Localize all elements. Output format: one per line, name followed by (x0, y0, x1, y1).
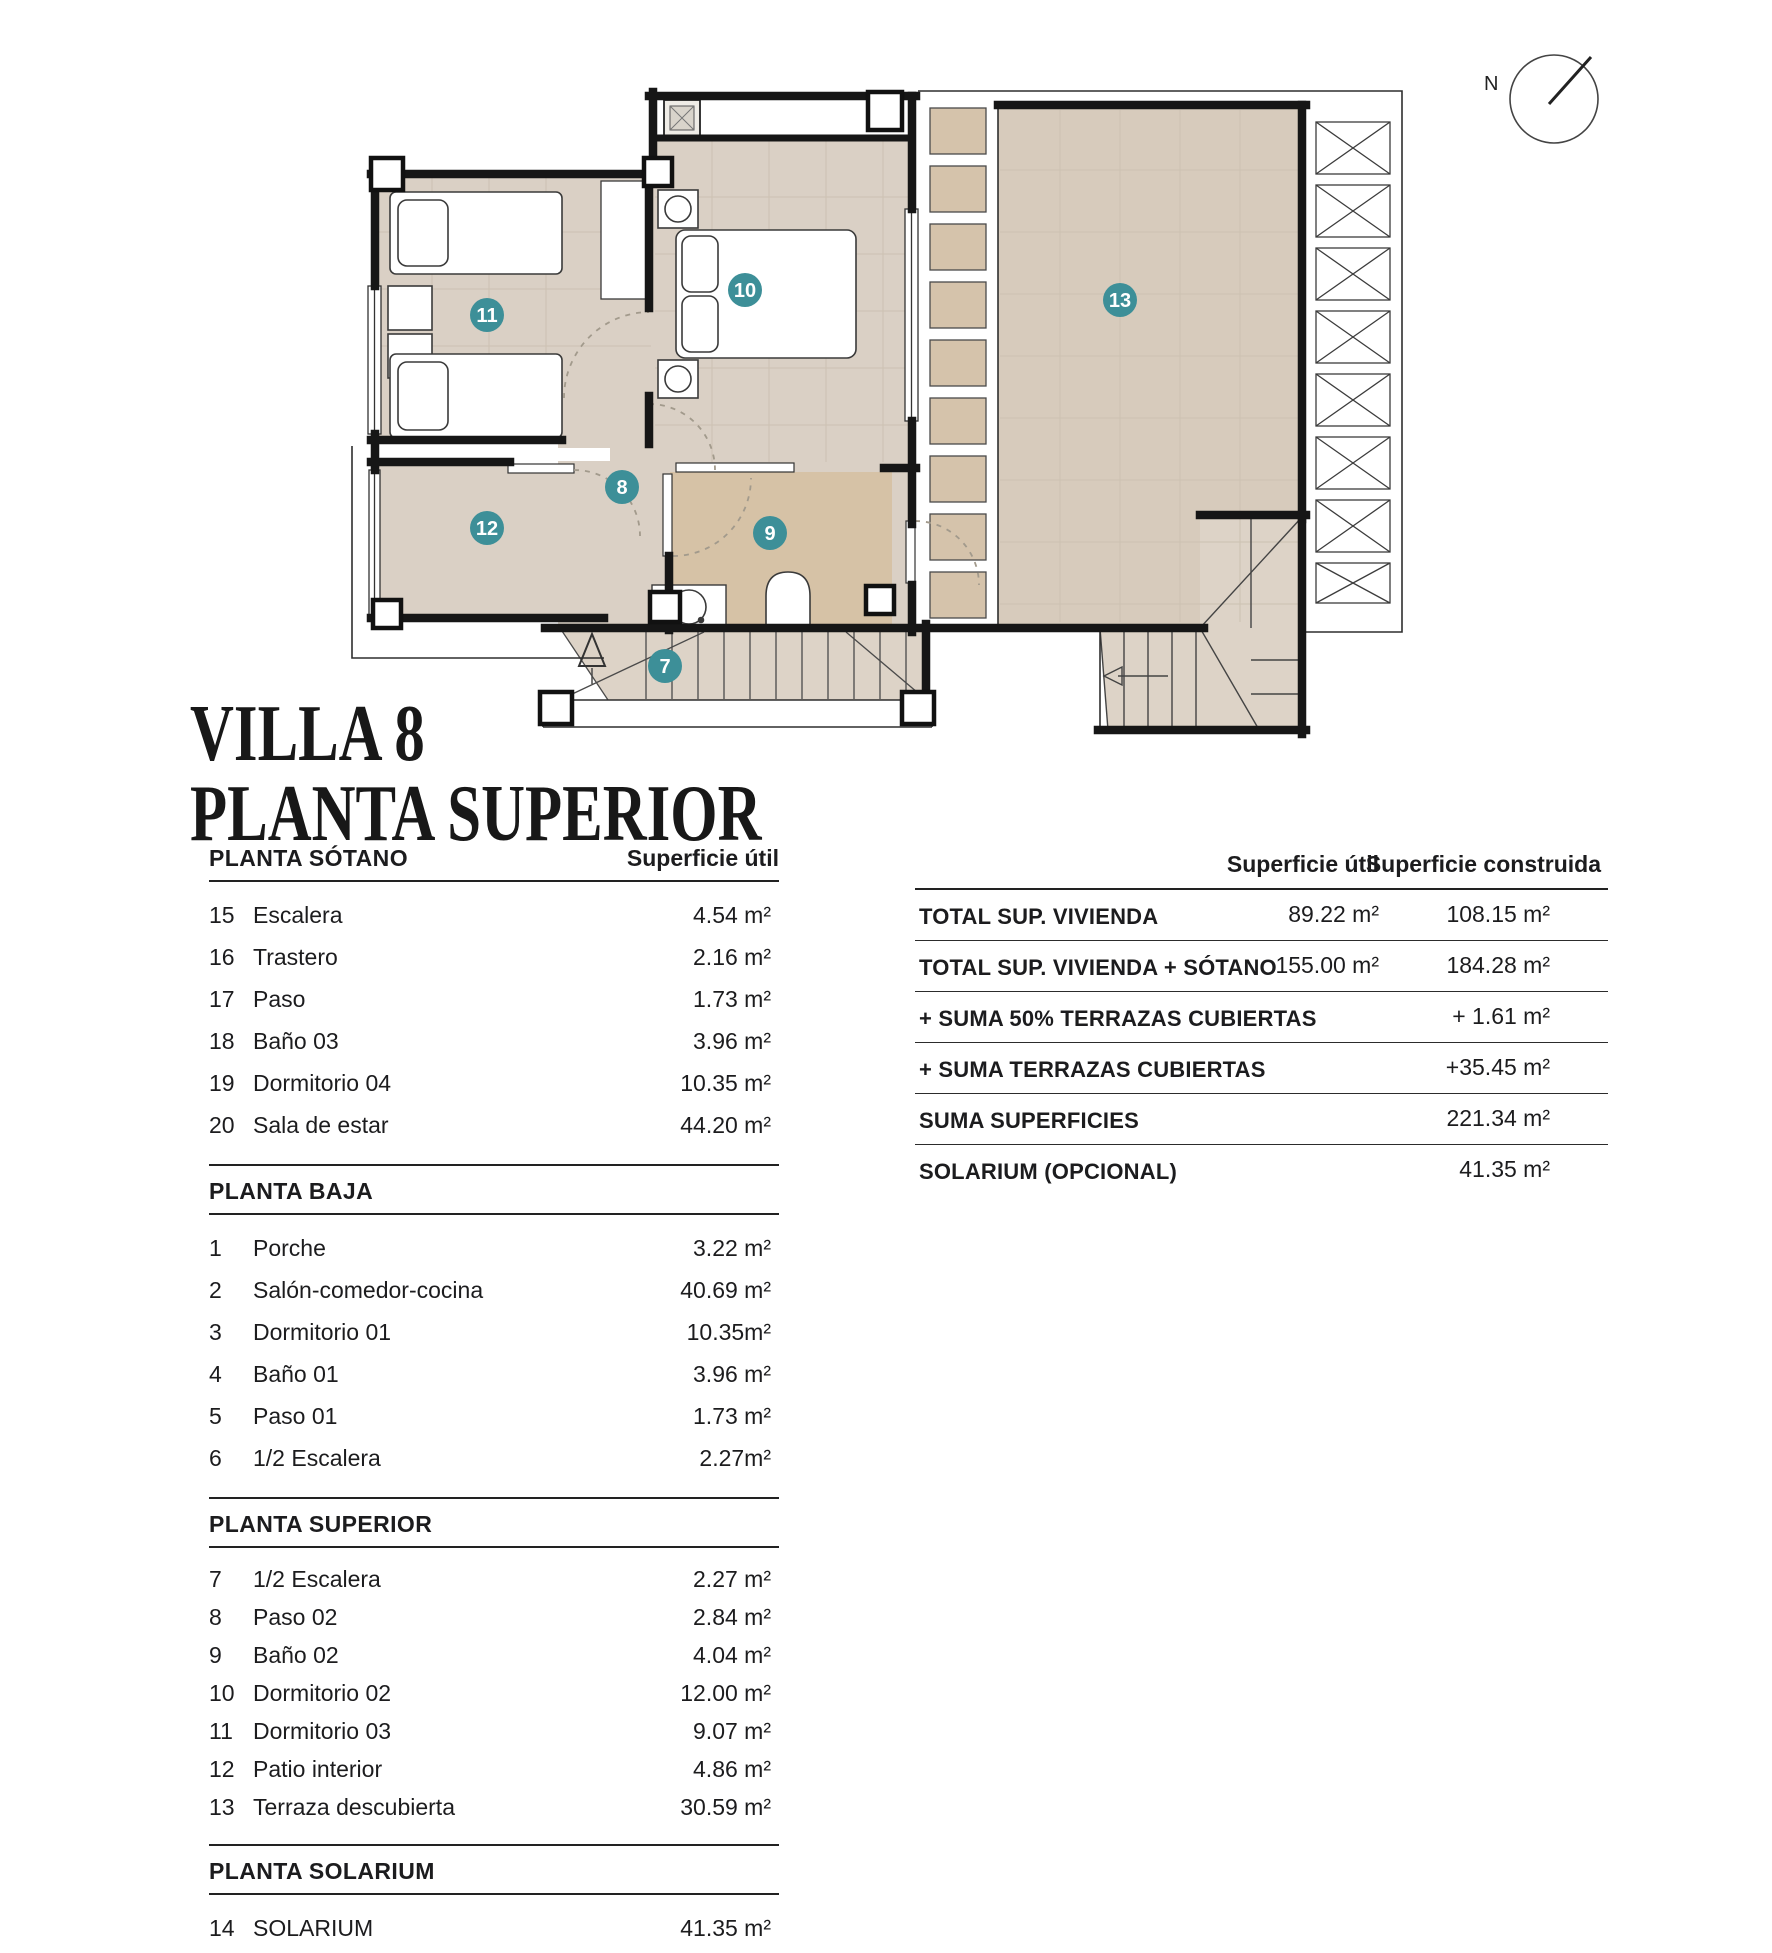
schedule-rows: 15Escalera4.54 m²16Trastero2.16 m²17Paso… (209, 882, 779, 1146)
room-number: 10 (209, 1680, 253, 1707)
room-area: 30.59 m² (680, 1794, 779, 1821)
door-leaf (508, 464, 574, 473)
room-number: 1 (209, 1235, 253, 1262)
summary-row: + SUMA TERRAZAS CUBIERTAS+35.45 m² (915, 1043, 1608, 1094)
room-name: Trastero (253, 944, 693, 971)
table-row: 16Trastero2.16 m² (209, 936, 779, 978)
summary-label: + SUMA TERRAZAS CUBIERTAS (919, 1057, 1266, 1083)
room-number: 17 (209, 986, 253, 1013)
pillow (682, 236, 718, 292)
room-area: 3.96 m² (693, 1028, 779, 1055)
room-area: 2.16 m² (693, 944, 779, 971)
summary-construida-value: 184.28 m² (1446, 952, 1550, 979)
room-area: 9.07 m² (693, 1718, 779, 1745)
table-row: 3Dormitorio 0110.35m² (209, 1311, 779, 1353)
section-title: PLANTA SÓTANO (209, 845, 408, 872)
room-area: 12.00 m² (680, 1680, 779, 1707)
pillar (868, 92, 902, 130)
lamp-icon (665, 196, 691, 222)
summary-label: TOTAL SUP. VIVIENDA + SÓTANO (919, 955, 1277, 981)
table-row: 13Terraza descubierta30.59 m² (209, 1788, 779, 1826)
room-number: 4 (209, 1361, 253, 1388)
schedule-section: PLANTA SÓTANOSuperficie útil15Escalera4.… (209, 845, 779, 1150)
wardrobe (601, 181, 649, 299)
pillar (902, 692, 934, 724)
table-row: 18Baño 033.96 m² (209, 1020, 779, 1062)
room-number: 18 (209, 1028, 253, 1055)
door-leaf (663, 474, 672, 556)
room-area: 4.04 m² (693, 1642, 779, 1669)
room-number: 6 (209, 1445, 253, 1472)
column-header-superficie-util: Superficie útil (1227, 851, 1379, 878)
room-marker-number: 11 (476, 305, 497, 327)
table-row: 9Baño 024.04 m² (209, 1636, 779, 1674)
room-name: Baño 03 (253, 1028, 693, 1055)
room-area: 41.35 m² (680, 1915, 779, 1942)
schedule-rows: 71/2 Escalera2.27 m²8Paso 022.84 m²9Baño… (209, 1548, 779, 1826)
schedule-section-header: PLANTA BAJA (209, 1178, 779, 1215)
section-title: PLANTA SUPERIOR (209, 1511, 432, 1538)
chimney (664, 100, 700, 136)
toilet-icon (766, 572, 810, 628)
room-name: Porche (253, 1235, 693, 1262)
room-name: Dormitorio 04 (253, 1070, 680, 1097)
pillar (650, 592, 680, 622)
room-name: 1/2 Escalera (253, 1566, 693, 1593)
room-number: 7 (209, 1566, 253, 1593)
room-area: 1.73 m² (693, 1403, 779, 1430)
page-title: VILLA 8 PLANTA SUPERIOR (190, 694, 761, 854)
room-number: 16 (209, 944, 253, 971)
room-area: 3.22 m² (693, 1235, 779, 1262)
exterior-stairs-fan-floor (1100, 628, 1200, 730)
compass-icon: N (1484, 55, 1598, 143)
room-marker-number: 13 (1109, 290, 1131, 312)
schedule-rows: 14SOLARIUM41.35 m² (209, 1895, 779, 1949)
room-area: 1.73 m² (693, 986, 779, 1013)
table-row: 71/2 Escalera2.27 m² (209, 1560, 779, 1598)
summary-header: Superficie útil Superficie construida (915, 845, 1608, 890)
summary-util-value: 155.00 m² (1275, 952, 1379, 979)
room-area: 40.69 m² (680, 1277, 779, 1304)
table-row: 20Sala de estar44.20 m² (209, 1104, 779, 1146)
title-line2: PLANTA SUPERIOR (190, 774, 761, 854)
room-name: Baño 02 (253, 1642, 693, 1669)
table-row: 11Dormitorio 039.07 m² (209, 1712, 779, 1750)
stairs-floor (560, 628, 930, 700)
summary-label: SUMA SUPERFICIES (919, 1108, 1139, 1134)
room-marker-number: 9 (764, 523, 775, 545)
room-number: 5 (209, 1403, 253, 1430)
room-number: 20 (209, 1112, 253, 1139)
floor-plan-svg: N 10111389127 (0, 0, 1772, 790)
room-area: 10.35 m² (680, 1070, 779, 1097)
pillar (371, 158, 403, 190)
room-schedule-table: PLANTA SÓTANOSuperficie útil15Escalera4.… (209, 845, 779, 1953)
room-name: Dormitorio 01 (253, 1319, 687, 1346)
summary-construida-value: 221.34 m² (1446, 1105, 1550, 1132)
schedule-section: PLANTA SUPERIOR71/2 Escalera2.27 m²8Paso… (209, 1497, 779, 1830)
room-area: 2.27m² (699, 1445, 779, 1472)
room-number: 2 (209, 1277, 253, 1304)
table-row: 1Porche3.22 m² (209, 1227, 779, 1269)
room-name: Baño 01 (253, 1361, 693, 1388)
room-number: 15 (209, 902, 253, 929)
room-number: 12 (209, 1756, 253, 1783)
summary-row: + SUMA 50% TERRAZAS CUBIERTAS+ 1.61 m² (915, 992, 1608, 1043)
door-leaf (676, 463, 794, 472)
section-title: PLANTA BAJA (209, 1178, 373, 1205)
schedule-section: PLANTA BAJA1Porche3.22 m²2Salón-comedor-… (209, 1164, 779, 1483)
pillow (682, 296, 718, 352)
room-name: Dormitorio 02 (253, 1680, 680, 1707)
room-name: Paso (253, 986, 693, 1013)
room-number: 14 (209, 1915, 253, 1942)
room-name: SOLARIUM (253, 1915, 680, 1942)
room-area: 44.20 m² (680, 1112, 779, 1139)
room-number: 8 (209, 1604, 253, 1631)
room-name: Salón-comedor-cocina (253, 1277, 680, 1304)
summary-label: SOLARIUM (OPCIONAL) (919, 1159, 1177, 1185)
table-row: 19Dormitorio 0410.35 m² (209, 1062, 779, 1104)
room-name: Terraza descubierta (253, 1794, 680, 1821)
room-number: 11 (209, 1718, 253, 1745)
room-name: 1/2 Escalera (253, 1445, 699, 1472)
section-title: PLANTA SOLARIUM (209, 1858, 435, 1885)
schedule-section-header: PLANTA SÓTANOSuperficie útil (209, 845, 779, 882)
pillar (866, 586, 894, 614)
room-name: Paso 02 (253, 1604, 693, 1631)
compass-north-label: N (1484, 73, 1498, 95)
summary-util-value: 89.22 m² (1288, 901, 1379, 928)
summary-label: + SUMA 50% TERRAZAS CUBIERTAS (919, 1006, 1317, 1032)
table-row: 5Paso 011.73 m² (209, 1395, 779, 1437)
nightstand (388, 286, 432, 330)
door-leaf (906, 521, 915, 583)
room-area: 4.86 m² (693, 1756, 779, 1783)
room-name: Paso 01 (253, 1403, 693, 1430)
pillow (398, 362, 448, 430)
summary-label: TOTAL SUP. VIVIENDA (919, 904, 1158, 930)
pergola-slats (930, 108, 986, 618)
room-marker-number: 12 (476, 518, 498, 540)
pillar (644, 158, 672, 186)
table-row: 10Dormitorio 0212.00 m² (209, 1674, 779, 1712)
room-marker-number: 10 (734, 280, 756, 302)
room-marker-number: 8 (616, 477, 627, 499)
table-row: 8Paso 022.84 m² (209, 1598, 779, 1636)
schedule-section: PLANTA SOLARIUM14SOLARIUM41.35 m² (209, 1844, 779, 1953)
title-line1: VILLA 8 (190, 694, 761, 774)
table-row: 4Baño 013.96 m² (209, 1353, 779, 1395)
room-area: 3.96 m² (693, 1361, 779, 1388)
room-name: Dormitorio 03 (253, 1718, 693, 1745)
room-number: 3 (209, 1319, 253, 1346)
schedule-rows: 1Porche3.22 m²2Salón-comedor-cocina40.69… (209, 1215, 779, 1479)
schedule-section-header: PLANTA SUPERIOR (209, 1511, 779, 1548)
beam-boxes (1316, 122, 1390, 603)
table-row: 17Paso1.73 m² (209, 978, 779, 1020)
column-header-superficie-util: Superficie útil (627, 845, 779, 872)
room-area: 4.54 m² (693, 902, 779, 929)
room-number: 19 (209, 1070, 253, 1097)
room-area: 2.84 m² (693, 1604, 779, 1631)
room-number: 13 (209, 1794, 253, 1821)
pillow (398, 200, 448, 266)
room-number: 9 (209, 1642, 253, 1669)
summary-row: SUMA SUPERFICIES221.34 m² (915, 1094, 1608, 1145)
summary-construida-value: +35.45 m² (1446, 1054, 1550, 1081)
room-name: Patio interior (253, 1756, 693, 1783)
sink-drain-icon (699, 618, 704, 623)
summary-table: Superficie útil Superficie construida TO… (915, 845, 1608, 1195)
column-header-superficie-construida: Superficie construida (1366, 851, 1601, 878)
room-name: Sala de estar (253, 1112, 680, 1139)
table-row: 2Salón-comedor-cocina40.69 m² (209, 1269, 779, 1311)
summary-rows: TOTAL SUP. VIVIENDA89.22 m²108.15 m²TOTA… (915, 890, 1608, 1195)
table-row: 14SOLARIUM41.35 m² (209, 1907, 779, 1949)
room-name: Escalera (253, 902, 693, 929)
room-marker-number: 7 (659, 656, 670, 678)
summary-row: TOTAL SUP. VIVIENDA89.22 m²108.15 m² (915, 890, 1608, 941)
table-row: 12Patio interior4.86 m² (209, 1750, 779, 1788)
table-row: 61/2 Escalera2.27m² (209, 1437, 779, 1479)
summary-row: TOTAL SUP. VIVIENDA + SÓTANO155.00 m²184… (915, 941, 1608, 992)
lamp-icon (665, 366, 691, 392)
room-area: 2.27 m² (693, 1566, 779, 1593)
pillar (373, 600, 401, 628)
summary-construida-value: 108.15 m² (1446, 901, 1550, 928)
summary-row: SOLARIUM (OPCIONAL)41.35 m² (915, 1145, 1608, 1195)
page: N 10111389127 VILLA 8 PLANTA SUPERIOR PL… (0, 0, 1772, 1920)
summary-construida-value: 41.35 m² (1459, 1156, 1550, 1183)
schedule-section-header: PLANTA SOLARIUM (209, 1858, 779, 1895)
table-row: 15Escalera4.54 m² (209, 894, 779, 936)
summary-construida-value: + 1.61 m² (1452, 1003, 1550, 1030)
room-area: 10.35m² (687, 1319, 779, 1346)
